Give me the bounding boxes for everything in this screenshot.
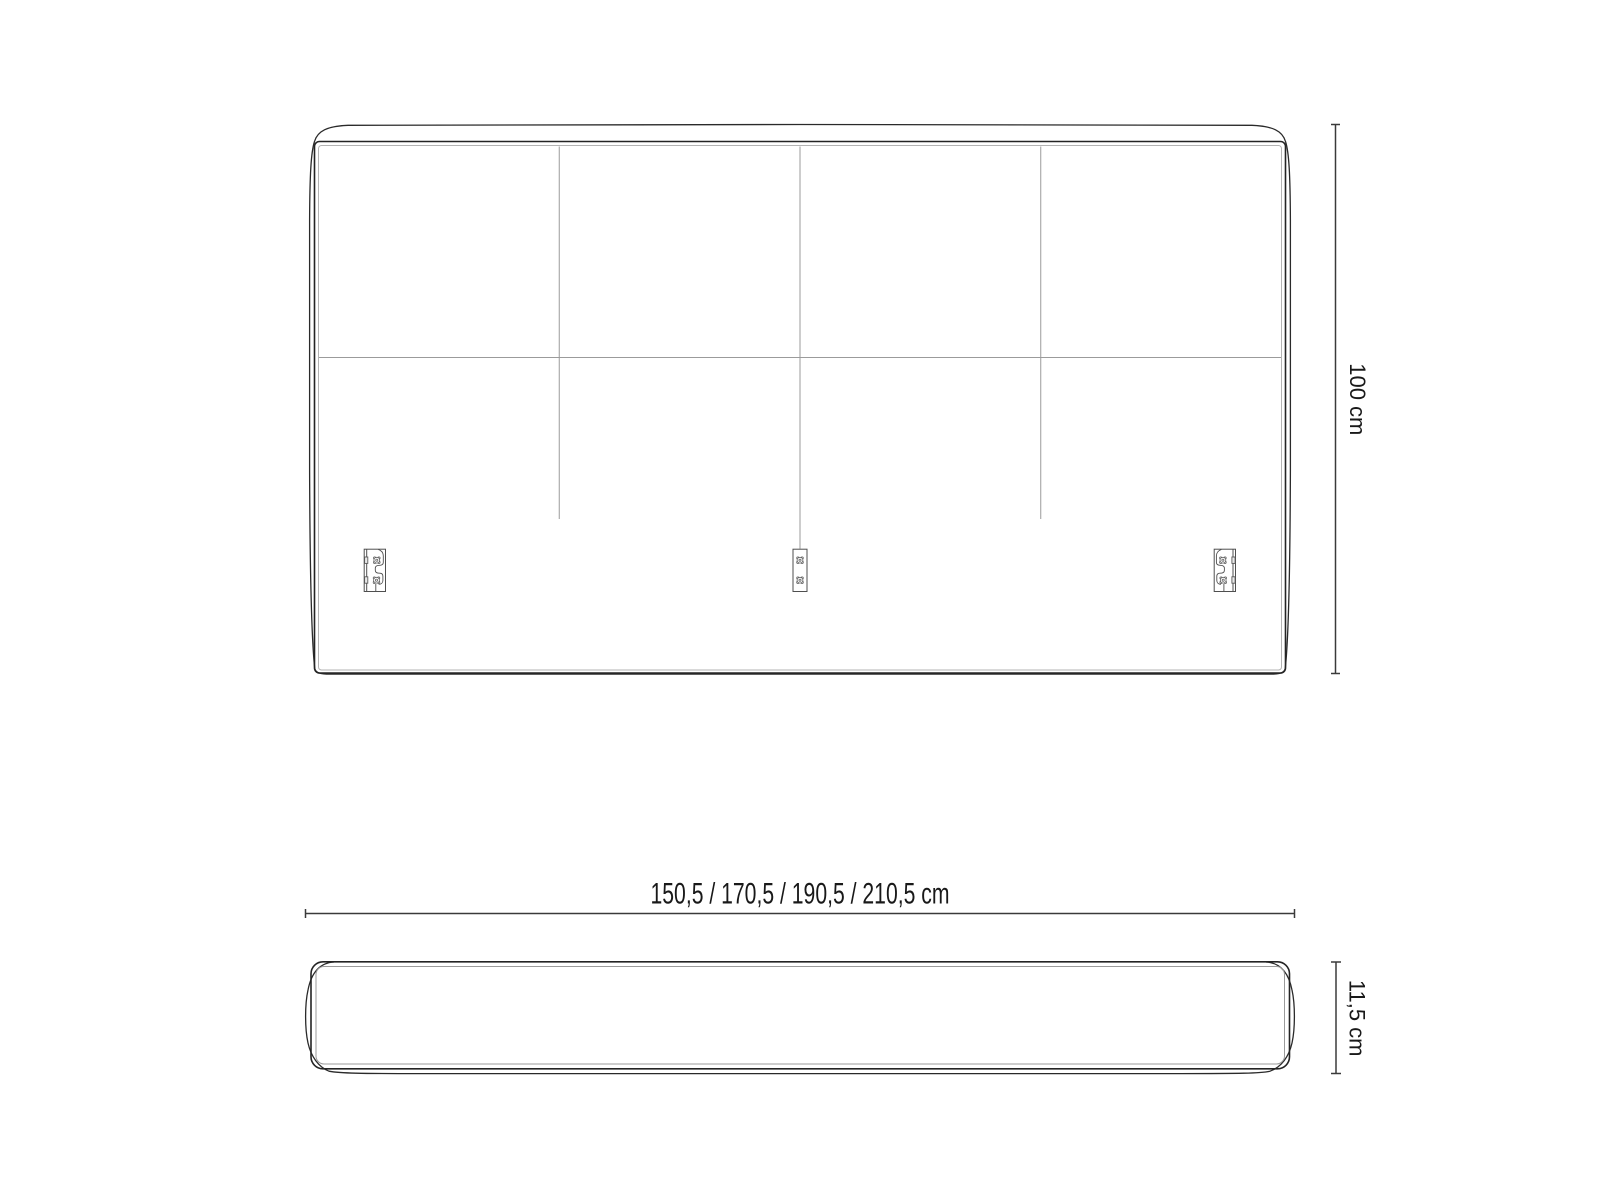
svg-text:11,5 cm: 11,5 cm: [1345, 980, 1370, 1057]
svg-text:150,5 / 170,5 / 190,5 / 210,5: 150,5 / 170,5 / 190,5 / 210,5 cm: [651, 878, 950, 911]
svg-text:100 cm: 100 cm: [1345, 363, 1370, 435]
